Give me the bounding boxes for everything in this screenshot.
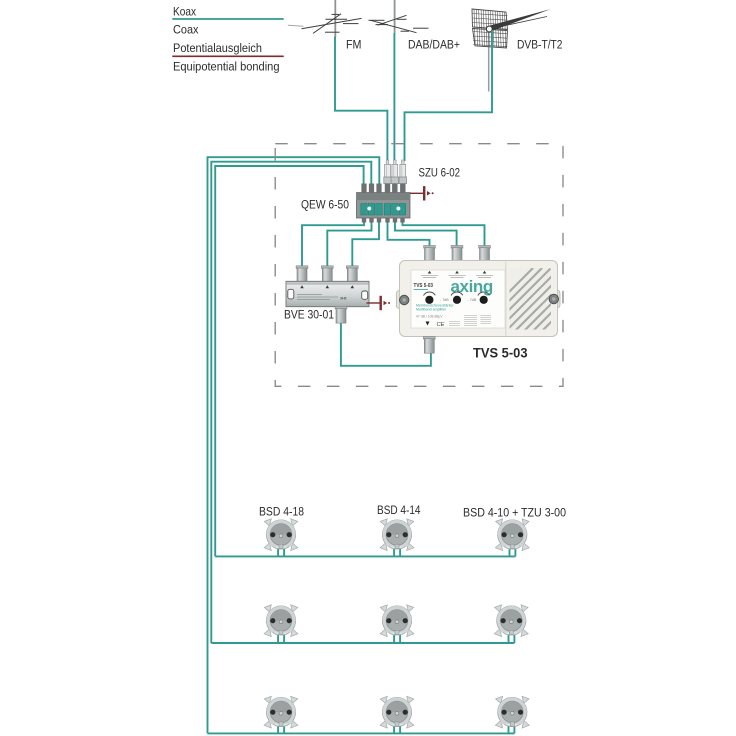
svg-text:BSD 4-14: BSD 4-14	[377, 503, 421, 517]
svg-text:BVE 30-01: BVE 30-01	[284, 308, 334, 322]
svg-text:TVS 5-03: TVS 5-03	[414, 283, 434, 289]
svg-text:- 7dB: - 7dB	[468, 298, 477, 302]
svg-text:- 7dB: - 7dB	[440, 298, 449, 302]
svg-text:axing: axing	[451, 277, 493, 296]
svg-text:TVS 5-03: TVS 5-03	[473, 345, 528, 361]
svg-text:DAB/DAB+: DAB/DAB+	[408, 38, 460, 52]
svg-text:CE: CE	[437, 322, 445, 328]
svg-text:Coax: Coax	[173, 23, 199, 37]
svg-text:47 dB / 108 dBµV: 47 dB / 108 dBµV	[416, 315, 443, 319]
svg-text:Potentialausgleich: Potentialausgleich	[173, 41, 262, 55]
svg-text:BSD 4-10 + TZU 3-00: BSD 4-10 + TZU 3-00	[463, 506, 566, 520]
svg-text:»«: »«	[340, 296, 347, 302]
svg-text:Multiband amplifier: Multiband amplifier	[416, 308, 447, 312]
svg-text:Koax: Koax	[173, 5, 197, 19]
svg-text:BSD 4-18: BSD 4-18	[259, 505, 304, 519]
svg-text:FM: FM	[346, 38, 362, 52]
svg-text:Equipotential bonding: Equipotential bonding	[173, 60, 280, 74]
svg-text:QEW 6-50: QEW 6-50	[301, 198, 349, 212]
svg-text:DVB-T/T2: DVB-T/T2	[517, 38, 563, 52]
svg-text:SZU 6-02: SZU 6-02	[419, 166, 461, 180]
